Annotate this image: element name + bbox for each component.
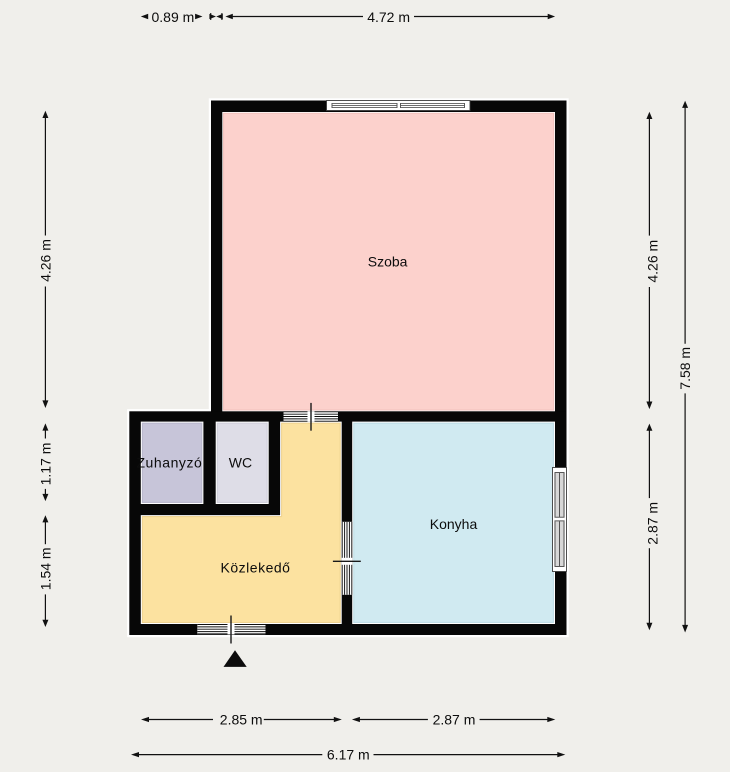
svg-text:4.26 m: 4.26 m: [645, 240, 661, 283]
svg-text:WC: WC: [229, 455, 252, 471]
svg-text:Zuhanyzó: Zuhanyzó: [136, 455, 202, 471]
svg-text:2.87 m: 2.87 m: [645, 502, 661, 545]
svg-text:Közlekedő: Közlekedő: [221, 560, 291, 576]
svg-text:2.87 m: 2.87 m: [433, 711, 476, 727]
svg-text:1.54 m: 1.54 m: [38, 547, 54, 590]
svg-text:2.85 m: 2.85 m: [220, 711, 263, 727]
svg-text:4.26 m: 4.26 m: [38, 239, 54, 282]
svg-text:1.17 m: 1.17 m: [38, 443, 54, 486]
svg-text:6.17 m: 6.17 m: [327, 747, 370, 763]
svg-text:7.58 m: 7.58 m: [677, 347, 693, 390]
svg-text:0.89 m: 0.89 m: [152, 9, 195, 25]
svg-text:Konyha: Konyha: [430, 516, 478, 532]
svg-text:4.72 m: 4.72 m: [367, 9, 410, 25]
svg-text:Szoba: Szoba: [368, 254, 408, 270]
